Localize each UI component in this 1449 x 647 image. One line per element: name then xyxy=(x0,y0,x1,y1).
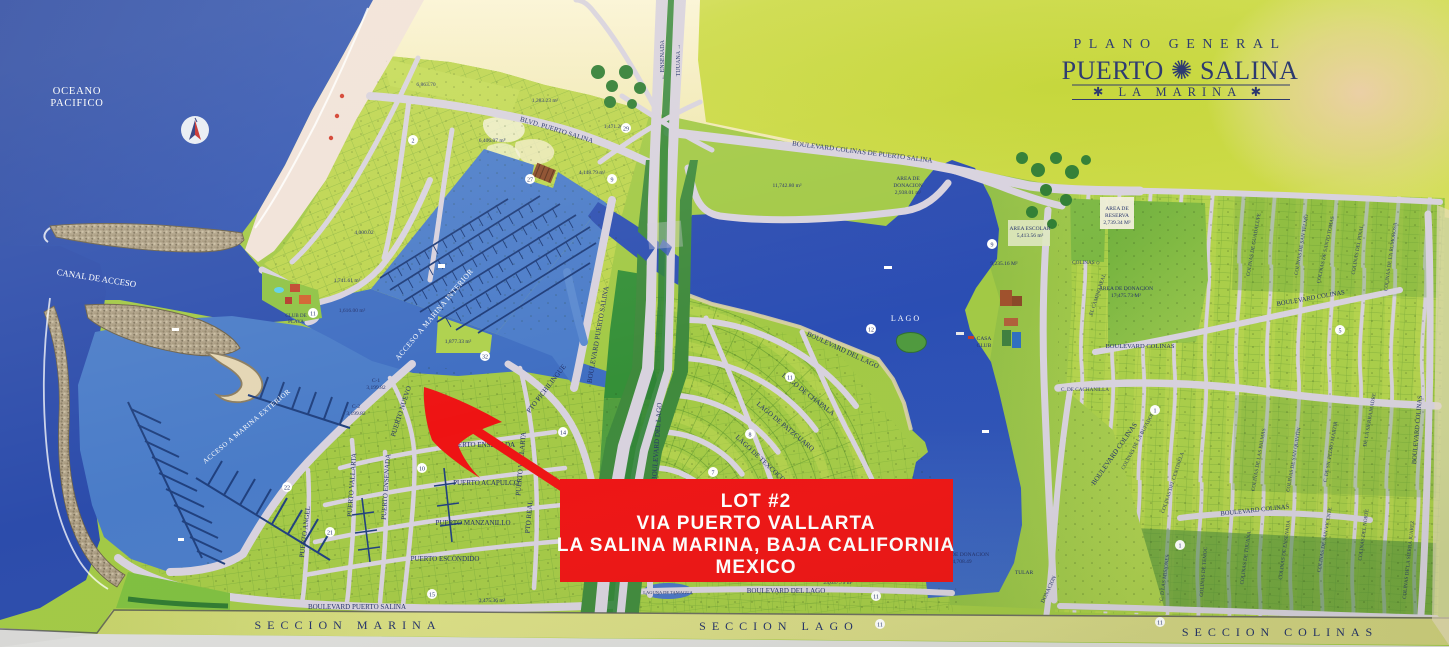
svg-text:SECCION LAGO: SECCION LAGO xyxy=(699,619,859,633)
svg-text:3,475.36 m²: 3,475.36 m² xyxy=(479,598,506,604)
svg-text:PLAYA: PLAYA xyxy=(288,320,304,325)
svg-text:AREA ESCOLAR: AREA ESCOLAR xyxy=(1009,226,1050,232)
svg-text:BOULEVARD DEL LAGO: BOULEVARD DEL LAGO xyxy=(747,587,826,595)
svg-text:BOULEVARD COLINAS: BOULEVARD COLINAS xyxy=(1105,343,1174,350)
svg-text:1,283.23 m²: 1,283.23 m² xyxy=(532,98,559,104)
svg-text:PACIFICO: PACIFICO xyxy=(50,98,103,109)
svg-text:2,938.01 m²: 2,938.01 m² xyxy=(895,190,922,196)
svg-text:SECCION MARINA: SECCION MARINA xyxy=(254,618,441,632)
svg-text:VIA PUERTO VALLARTA: VIA PUERTO VALLARTA xyxy=(637,513,876,534)
svg-text:PUERTO ACAPULCO: PUERTO ACAPULCO xyxy=(453,479,519,487)
svg-text:PLANO GENERAL: PLANO GENERAL xyxy=(1074,37,1287,52)
svg-text:PUERTO ESCONDIDO: PUERTO ESCONDIDO xyxy=(411,555,480,563)
svg-text:10: 10 xyxy=(419,467,425,473)
svg-text:C. DE CACHANILLA: C. DE CACHANILLA xyxy=(1061,387,1109,393)
svg-text:TULAR: TULAR xyxy=(1015,570,1034,576)
svg-text:CLUB DE: CLUB DE xyxy=(285,314,306,319)
svg-text:11,742.80 m²: 11,742.80 m² xyxy=(772,183,801,189)
svg-text:4,000.02: 4,000.02 xyxy=(354,230,374,236)
svg-text:AREA DE: AREA DE xyxy=(896,176,920,182)
svg-text:6,406.07 m²: 6,406.07 m² xyxy=(479,138,506,144)
svg-text:1,877.33 m²: 1,877.33 m² xyxy=(445,339,472,345)
svg-text:LAGUNA DE TAMAGUA: LAGUNA DE TAMAGUA xyxy=(643,590,693,595)
svg-text:2,739.34 M²: 2,739.34 M² xyxy=(1103,220,1131,226)
svg-text:17,475.73 M²: 17,475.73 M² xyxy=(1111,293,1141,299)
svg-text:15: 15 xyxy=(429,593,435,599)
svg-text:3,199.82: 3,199.82 xyxy=(346,411,366,417)
svg-text:LAGO: LAGO xyxy=(891,314,921,323)
svg-text:OCEANO: OCEANO xyxy=(53,86,102,97)
svg-text:CASA: CASA xyxy=(977,336,992,342)
svg-text:PUERTO ✺ SALINA: PUERTO ✺ SALINA xyxy=(1062,56,1299,85)
svg-text:32: 32 xyxy=(482,355,488,361)
svg-text:1,741.61 m²: 1,741.61 m² xyxy=(334,278,361,284)
svg-text:9: 9 xyxy=(611,178,614,184)
svg-text:29: 29 xyxy=(623,127,629,133)
svg-text:CLUB: CLUB xyxy=(977,343,992,349)
svg-text:11: 11 xyxy=(1157,621,1163,627)
svg-text:14: 14 xyxy=(560,431,566,437)
svg-text:21: 21 xyxy=(327,531,333,537)
svg-text:4,148.79 m²: 4,148.79 m² xyxy=(579,170,606,176)
svg-text:4,708.49: 4,708.49 xyxy=(952,559,972,565)
svg-text:12: 12 xyxy=(868,328,874,334)
svg-text:11: 11 xyxy=(787,376,793,382)
svg-text:11: 11 xyxy=(877,623,883,629)
svg-text:C-2: C-2 xyxy=(352,404,361,410)
svg-text:7: 7 xyxy=(712,471,715,477)
svg-text:RESERVA: RESERVA xyxy=(1105,213,1129,219)
svg-text:COLINAS ◇: COLINAS ◇ xyxy=(1072,260,1100,266)
svg-text:BOULEVARD PUERTO SALINA: BOULEVARD PUERTO SALINA xyxy=(308,603,406,611)
svg-text:5: 5 xyxy=(1339,329,1342,335)
svg-text:← ENSENADA: ← ENSENADA xyxy=(660,39,666,79)
svg-text:11: 11 xyxy=(310,312,316,318)
svg-text:1: 1 xyxy=(1154,409,1157,415)
svg-text:8: 8 xyxy=(749,433,752,439)
svg-text:6,863.70: 6,863.70 xyxy=(416,82,436,88)
svg-text:SECCION COLINAS: SECCION COLINAS xyxy=(1182,625,1378,639)
svg-text:DONACION: DONACION xyxy=(893,183,922,189)
svg-text:5,413.56 m²: 5,413.56 m² xyxy=(1017,233,1044,239)
svg-text:C-1: C-1 xyxy=(372,378,381,384)
svg-text:3,199.82: 3,199.82 xyxy=(366,385,386,391)
svg-text:11: 11 xyxy=(873,595,879,601)
svg-text:9: 9 xyxy=(991,243,994,249)
svg-text:9,235.16 M²: 9,235.16 M² xyxy=(990,261,1018,267)
svg-text:2: 2 xyxy=(412,139,415,145)
svg-text:22: 22 xyxy=(284,486,290,492)
svg-text:1,616.00 m²: 1,616.00 m² xyxy=(339,308,366,314)
svg-text:MEXICO: MEXICO xyxy=(716,557,797,578)
svg-text:TIJUANA →: TIJUANA → xyxy=(676,44,682,77)
svg-text:27: 27 xyxy=(527,178,533,184)
svg-text:AREA DE: AREA DE xyxy=(1105,206,1129,212)
svg-text:LA SALINA MARINA, BAJA CALIFOR: LA SALINA MARINA, BAJA CALIFORNIA xyxy=(557,535,955,556)
svg-text:PUERTO MANZANILLO: PUERTO MANZANILLO xyxy=(435,519,510,527)
svg-text:LOT #2: LOT #2 xyxy=(721,491,791,512)
svg-text:✱ LA MARINA ✱: ✱ LA MARINA ✱ xyxy=(1093,85,1267,99)
svg-text:1: 1 xyxy=(1179,544,1182,550)
svg-text:AREA DE DONACION: AREA DE DONACION xyxy=(1099,286,1153,292)
